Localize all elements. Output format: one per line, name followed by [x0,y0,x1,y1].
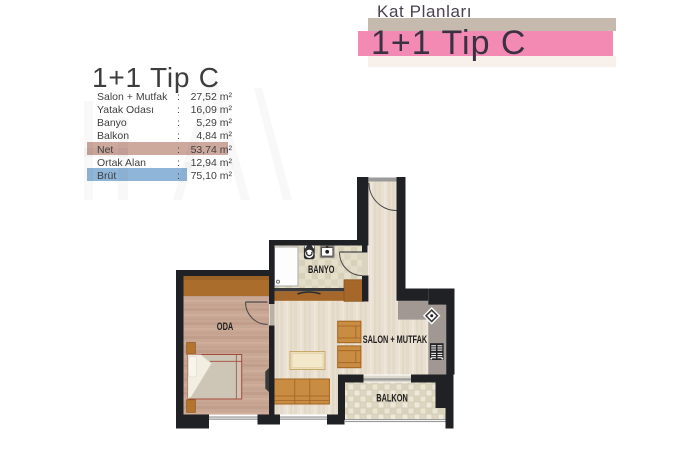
svg-text:ODA: ODA [217,321,234,333]
svg-text:BANYO: BANYO [308,264,335,276]
svg-text:BALKON: BALKON [376,392,408,404]
svg-text:SALON + MUTFAK: SALON + MUTFAK [363,334,428,346]
